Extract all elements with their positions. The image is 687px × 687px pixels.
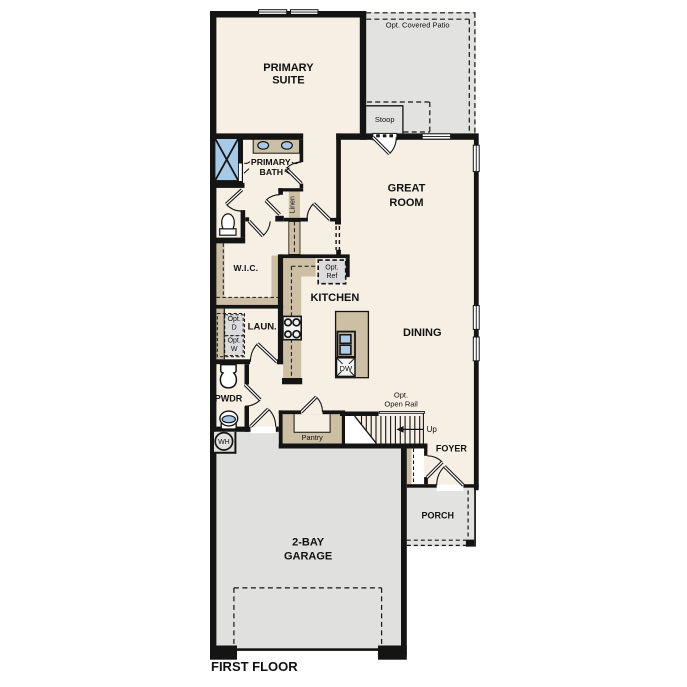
svg-text:Ref: Ref (326, 273, 337, 280)
svg-text:DW: DW (340, 364, 353, 373)
svg-text:Open Rail: Open Rail (384, 400, 418, 409)
svg-text:KITCHEN: KITCHEN (310, 292, 359, 304)
svg-text:W.I.C.: W.I.C. (234, 263, 259, 273)
svg-text:Opt.: Opt. (325, 264, 338, 271)
svg-text:D: D (232, 325, 237, 332)
svg-text:GREAT: GREAT (388, 183, 426, 195)
svg-text:Pantry: Pantry (302, 433, 323, 442)
svg-text:SUITE: SUITE (272, 75, 304, 87)
svg-text:ROOM: ROOM (389, 197, 423, 209)
svg-text:GARAGE: GARAGE (284, 550, 332, 562)
svg-text:Stoop: Stoop (375, 115, 395, 124)
svg-text:PWDR: PWDR (215, 393, 243, 403)
svg-text:PORCH: PORCH (421, 511, 454, 521)
svg-text:W: W (231, 346, 238, 353)
svg-text:Opt. Covered Patio: Opt. Covered Patio (386, 21, 450, 30)
svg-text:Up: Up (427, 425, 438, 434)
svg-text:2-BAY: 2-BAY (292, 536, 325, 548)
svg-text:DINING: DINING (403, 327, 442, 339)
svg-text:Opt.: Opt. (228, 337, 241, 344)
svg-text:PRIMARY: PRIMARY (251, 157, 291, 167)
svg-text:BATH: BATH (260, 167, 283, 177)
svg-text:LAUN.: LAUN. (248, 322, 277, 333)
svg-text:PRIMARY: PRIMARY (263, 62, 314, 74)
svg-text:WH: WH (218, 439, 230, 446)
svg-text:FOYER: FOYER (436, 444, 468, 454)
svg-text:FIRST FLOOR: FIRST FLOOR (211, 659, 298, 674)
svg-text:Linen: Linen (289, 196, 296, 213)
svg-text:Opt.: Opt. (394, 390, 408, 399)
svg-text:Opt.: Opt. (228, 316, 241, 323)
